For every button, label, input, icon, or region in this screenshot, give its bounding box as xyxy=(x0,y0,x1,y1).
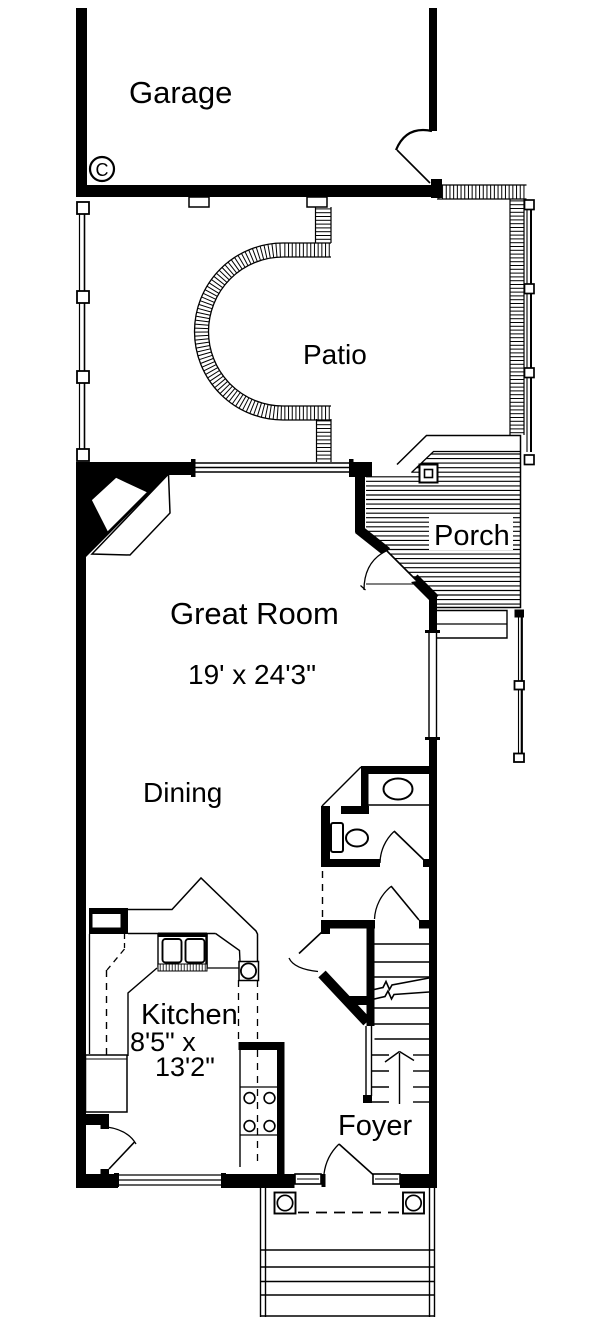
svg-text:C: C xyxy=(96,160,109,180)
svg-text:19' x 24'3": 19' x 24'3" xyxy=(188,659,316,690)
svg-text:Great Room: Great Room xyxy=(170,596,339,631)
svg-text:Dining: Dining xyxy=(143,777,222,808)
svg-text:Patio: Patio xyxy=(303,339,367,370)
svg-text:Garage: Garage xyxy=(129,75,232,110)
svg-text:Foyer: Foyer xyxy=(338,1110,412,1142)
svg-text:13'2": 13'2" xyxy=(155,1052,215,1082)
svg-text:Porch: Porch xyxy=(434,520,510,552)
